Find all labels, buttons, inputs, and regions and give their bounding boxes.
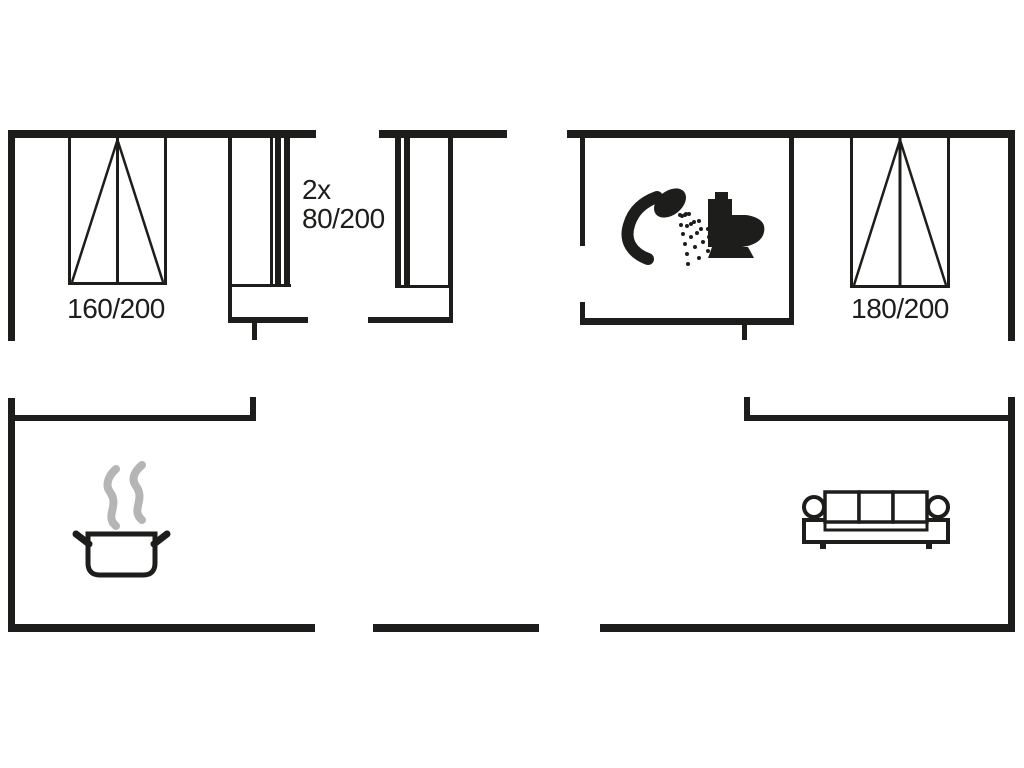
double-bed-icon bbox=[850, 138, 950, 288]
bathroom-left-wall-upper bbox=[580, 138, 585, 246]
kitchen-top-jamb bbox=[250, 397, 256, 421]
room1-door-jamb bbox=[252, 317, 257, 340]
top-wall-segment-2 bbox=[379, 130, 507, 138]
top-wall-segment-3 bbox=[567, 130, 1015, 138]
single-bed-icon bbox=[388, 138, 452, 288]
bathroom-bottom-wall bbox=[580, 318, 793, 325]
right-wall-lower bbox=[1008, 397, 1015, 632]
room1-bottom-wall bbox=[228, 317, 308, 323]
bathroom-door-jamb bbox=[742, 325, 747, 340]
floorplan-canvas: 160/200 2x 80/200 180/200 bbox=[0, 0, 1024, 768]
room2-bottom-wall bbox=[368, 317, 453, 323]
single-beds-count-label: 2x bbox=[302, 175, 331, 204]
left-wall-lower bbox=[8, 398, 15, 632]
bathroom-right-wall bbox=[789, 138, 794, 325]
bottom-wall-segment-2 bbox=[373, 624, 539, 632]
bed-size-label-right: 180/200 bbox=[844, 294, 956, 323]
sofa-icon bbox=[801, 488, 951, 552]
left-wall-upper bbox=[8, 130, 15, 341]
top-wall-segment-1 bbox=[8, 130, 316, 138]
living-top-jamb bbox=[744, 397, 750, 421]
single-beds-size-label: 80/200 bbox=[302, 204, 385, 233]
bottom-wall-segment-3 bbox=[600, 624, 1015, 632]
bottom-wall-segment-1 bbox=[8, 624, 315, 632]
living-top-wall bbox=[744, 415, 1015, 421]
single-bed-icon bbox=[228, 138, 291, 287]
toilet-icon bbox=[702, 190, 768, 262]
double-bed-icon bbox=[68, 138, 167, 285]
cooking-pot-icon bbox=[52, 460, 176, 582]
steam-icon bbox=[108, 465, 142, 526]
right-wall-upper bbox=[1008, 130, 1015, 341]
bed-size-label-left: 160/200 bbox=[60, 294, 172, 323]
kitchen-top-wall bbox=[8, 415, 255, 421]
